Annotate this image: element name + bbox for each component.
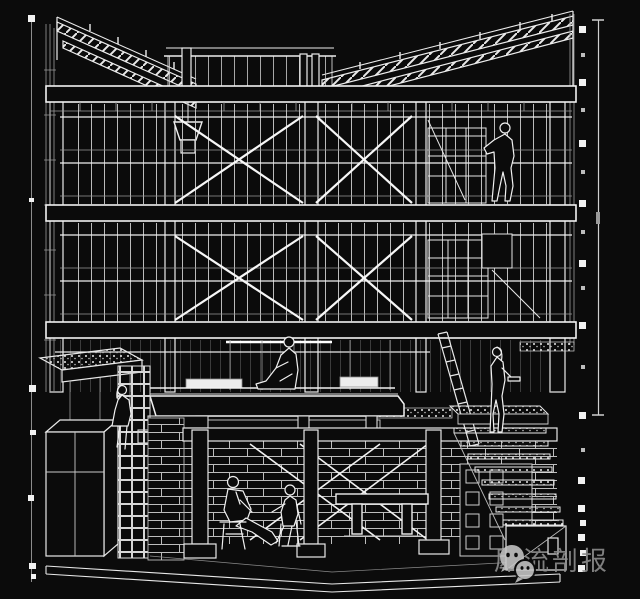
left-dimension-ruler xyxy=(28,15,36,582)
section-drawing xyxy=(0,0,640,599)
architectural-section-screenshot: 犀流剖报 xyxy=(0,0,640,599)
right-dimension-ruler xyxy=(578,20,604,572)
second-floor-window-wall xyxy=(60,223,572,322)
